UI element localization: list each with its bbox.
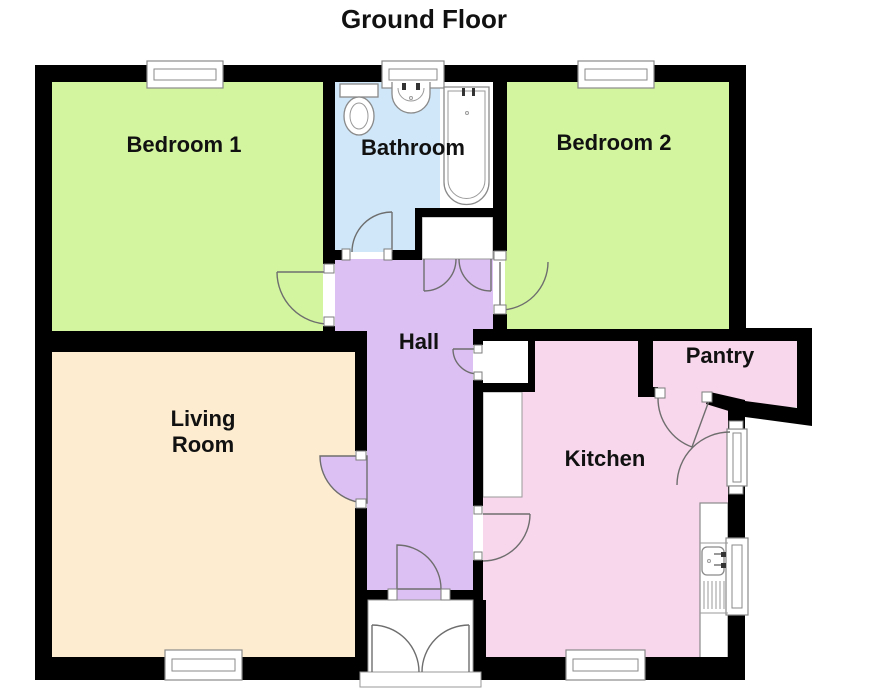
living-room-window [165,650,242,680]
wall-segment [415,208,422,259]
door-jamb [474,506,482,514]
kitchen-unit [483,392,522,497]
door-jamb [702,392,712,402]
wall-segment [355,600,368,680]
bath-tap-icon [472,88,475,96]
door-jamb [388,589,397,600]
hall-area-upper [335,259,493,334]
porch [360,600,481,687]
airing-cupboard [422,217,493,259]
basin-tap-icon [416,83,420,90]
wall-segment [473,383,535,392]
wall-segment [323,80,335,264]
door-jamb [729,421,743,429]
door-jamb [494,251,506,260]
wall-segment [473,341,483,345]
wall-segment [638,341,653,387]
wall-segment [493,80,507,251]
sink-tap-icon [721,552,726,557]
wall-segment [528,341,535,392]
sink-tap-icon [721,563,726,568]
living-room-area [52,352,355,657]
hall-label: Hall [399,329,439,354]
pantry-label: Pantry [686,343,755,368]
door-jamb [342,249,350,260]
door-jamb [655,388,665,398]
page-title: Ground Floor [341,4,507,34]
back-door [727,429,747,486]
door-jamb [356,499,366,508]
basin-tap-icon [402,83,406,90]
wall-segment [473,560,483,600]
wall-segment [332,250,342,260]
wall-segment [35,65,52,680]
kitchen-sink-icon [702,547,724,575]
door-jamb [324,317,334,326]
bedroom1-area [52,80,323,331]
wall-segment [355,508,367,600]
kitchen-bottom-window [566,650,645,680]
bedroom1-window [147,61,223,88]
wall-segment [473,600,486,680]
bedroom2-window [578,61,654,88]
bedroom2-label: Bedroom 2 [557,130,672,155]
door-jamb [384,249,392,260]
wall-segment [35,331,367,352]
bath-tap-icon [462,88,465,96]
wall-segment [473,380,483,506]
bathroom-label: Bathroom [361,135,465,160]
door-jamb [729,486,743,494]
wall-segment [797,328,812,416]
floor-plan: Ground Floor Bedroom 1 Bathroom Bedroom … [0,0,872,690]
kitchen-label: Kitchen [565,446,646,471]
door-jamb [324,264,334,273]
kitchen-side-window [726,538,748,615]
wall-segment [449,590,473,600]
door-jamb [474,345,482,353]
floor-plan-svg: Ground Floor Bedroom 1 Bathroom Bedroom … [0,0,872,690]
toilet-cistern-icon [340,84,378,97]
door-jamb [494,305,506,314]
basin-icon [392,82,430,113]
wall-segment [729,65,746,341]
wall-segment [355,352,367,451]
kitchen-area-upper [533,341,638,392]
wall-segment [473,329,745,341]
door-jamb [356,451,366,460]
wall-segment [367,590,388,600]
door-jamb [474,372,482,380]
living-room-label-line1: Living [171,406,236,431]
bedroom1-label: Bedroom 1 [127,132,242,157]
bedroom2-area [505,80,731,330]
door-jamb [474,552,482,560]
porch-step [360,672,481,687]
living-room-label-line2: Room [172,432,234,457]
porch-floor [368,600,473,672]
door-jamb [441,589,450,600]
